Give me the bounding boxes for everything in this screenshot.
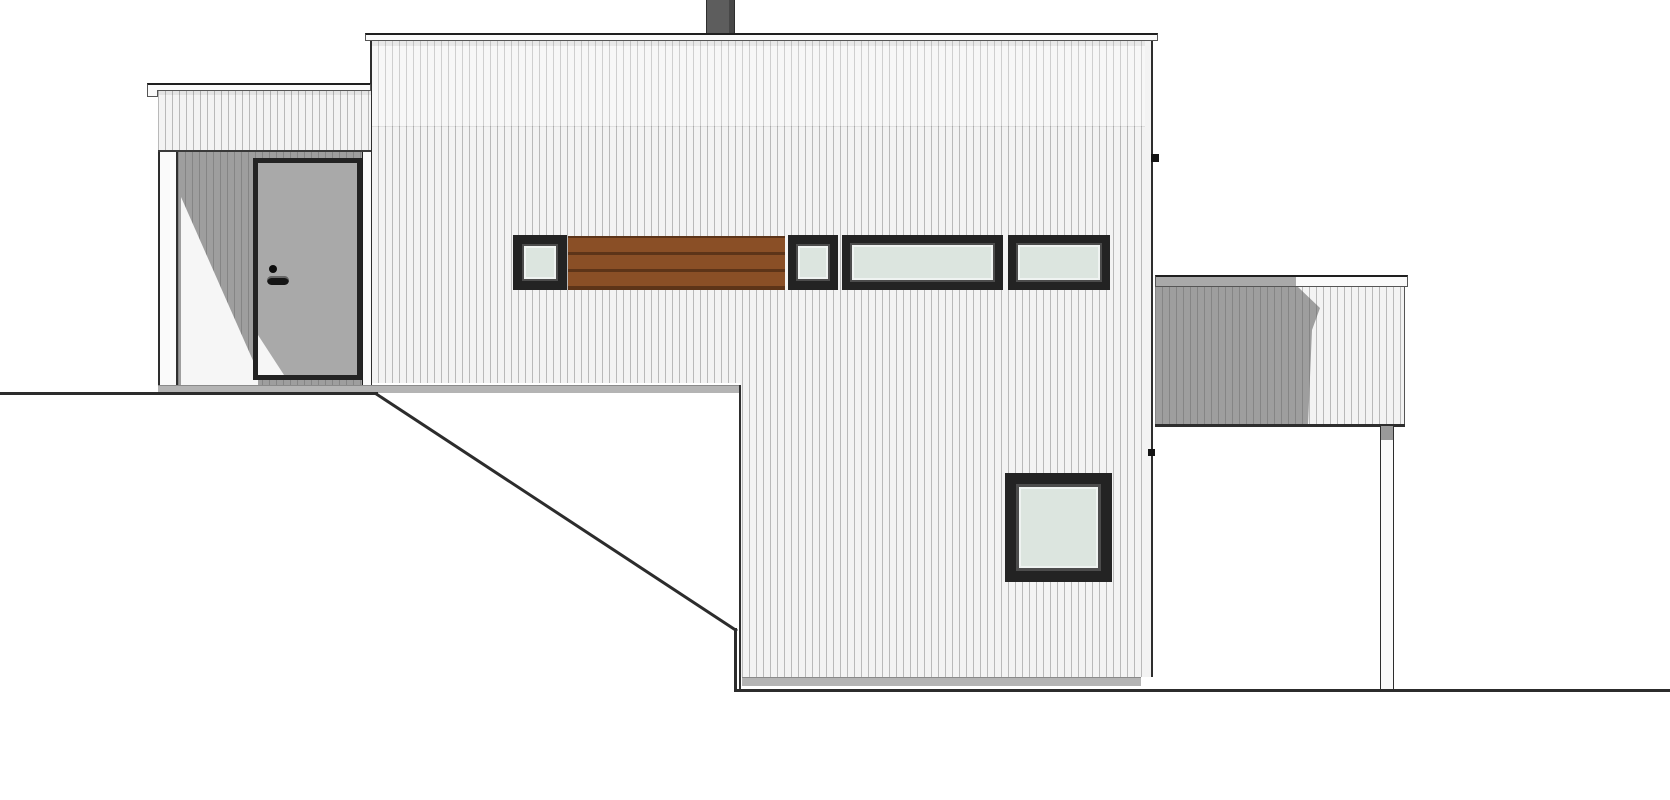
entry-corner-trim xyxy=(362,152,371,385)
chimney xyxy=(706,0,735,35)
lower-wall-left-edge xyxy=(739,385,741,690)
deck-rail-shadow xyxy=(1156,277,1296,286)
entry-door-panel xyxy=(258,163,357,375)
terrain-line-right xyxy=(734,689,1670,692)
door-handle xyxy=(267,276,289,285)
entry-roof-cap xyxy=(147,83,371,91)
square-window-glass xyxy=(1016,484,1101,571)
porch-post xyxy=(158,152,178,385)
deck-bottom-edge xyxy=(1155,424,1405,427)
band-window-long-1-glass xyxy=(850,243,995,282)
terrain-drop xyxy=(734,628,737,692)
chimney-shade-edge xyxy=(729,0,734,34)
band-window-small-2 xyxy=(788,235,838,290)
terrain-slope xyxy=(374,392,738,632)
band-window-small-1 xyxy=(513,235,567,290)
wall-right-edge xyxy=(1151,41,1153,677)
band-window-long-2 xyxy=(1008,235,1110,290)
square-window xyxy=(1005,473,1112,582)
deck-rail xyxy=(1155,275,1408,287)
right-edge-bracket-upper xyxy=(1151,154,1159,162)
band-window-long-2-glass xyxy=(1016,243,1102,282)
upper-wall-highlight xyxy=(371,40,1152,126)
band-window-small-2-glass xyxy=(796,244,830,281)
terrain-line-left xyxy=(0,392,378,395)
upper-wall-joint-line xyxy=(371,126,1152,127)
entry-fascia-siding xyxy=(158,90,371,152)
deck-post-cap xyxy=(1381,426,1393,440)
main-roof-cap xyxy=(365,33,1158,41)
plinth-lower xyxy=(742,677,1141,686)
elevation-drawing xyxy=(0,0,1670,800)
band-window-small-1-glass xyxy=(522,244,558,281)
entry-door-frame xyxy=(253,158,362,380)
door-peephole xyxy=(269,265,277,273)
entry-roof-cap-tab xyxy=(147,90,158,97)
right-edge-bracket-lower xyxy=(1148,449,1155,456)
band-window-long-1 xyxy=(842,235,1003,290)
wood-slat-panel xyxy=(568,236,785,290)
deck-post xyxy=(1380,426,1394,691)
